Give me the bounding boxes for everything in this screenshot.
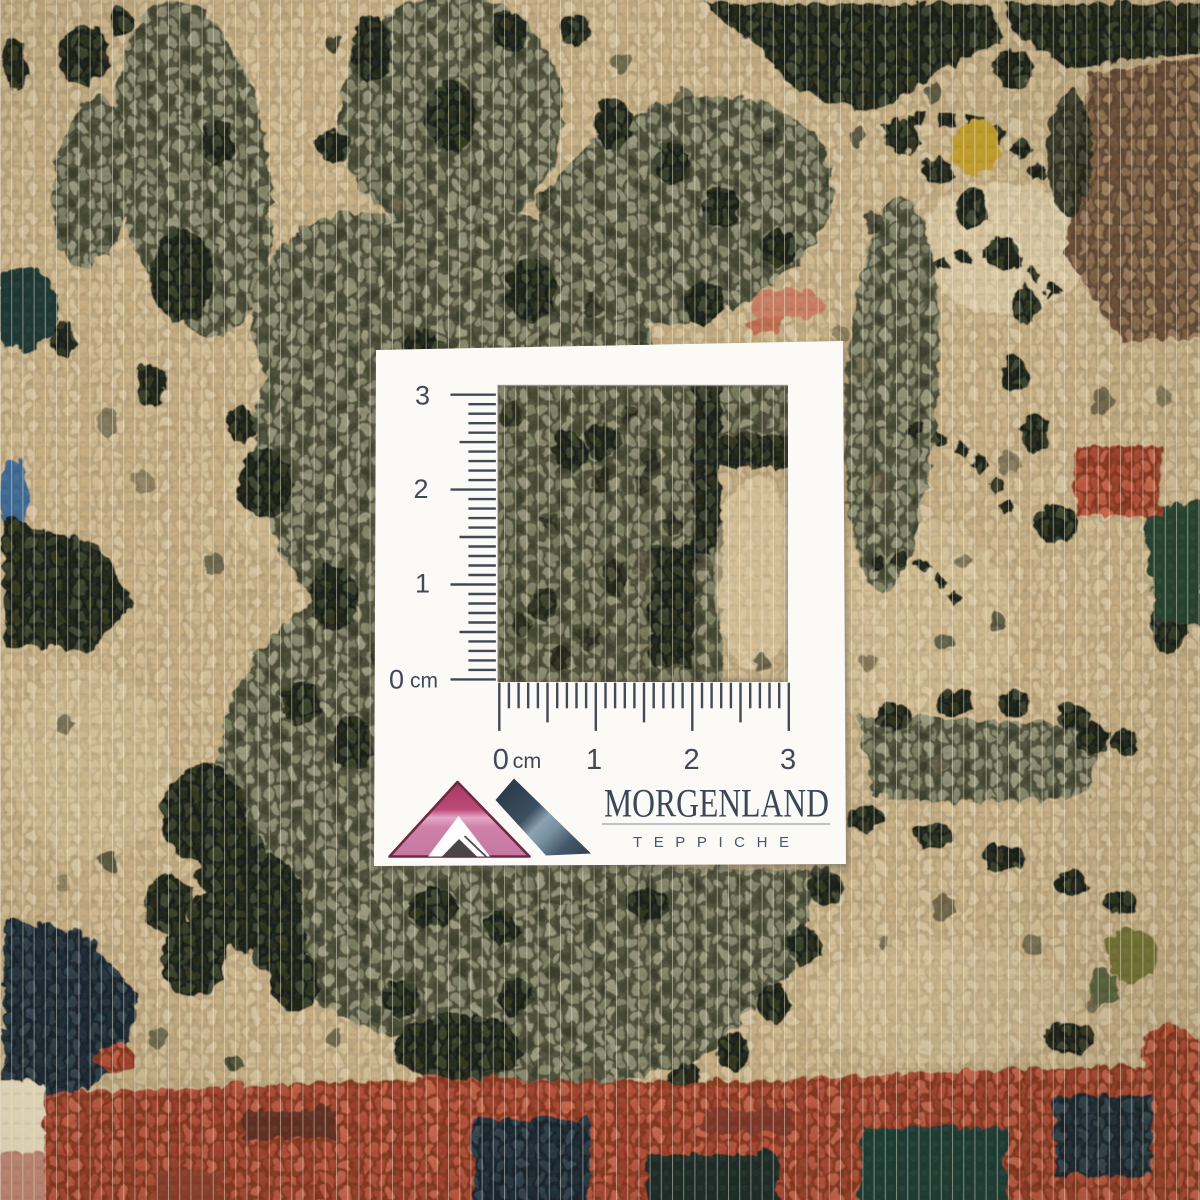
svg-text:cm: cm	[513, 749, 542, 773]
svg-text:1: 1	[415, 569, 430, 599]
svg-text:3: 3	[415, 381, 430, 411]
svg-text:0: 0	[493, 744, 509, 776]
svg-text:cm: cm	[410, 670, 438, 693]
svg-text:TEPPICHE: TEPPICHE	[633, 834, 799, 851]
svg-text:3: 3	[780, 744, 796, 776]
svg-text:0: 0	[389, 665, 404, 695]
svg-text:2: 2	[414, 474, 429, 504]
svg-text:MORGENLAND: MORGENLAND	[604, 781, 829, 826]
svg-text:2: 2	[684, 744, 700, 776]
svg-text:1: 1	[586, 744, 602, 776]
